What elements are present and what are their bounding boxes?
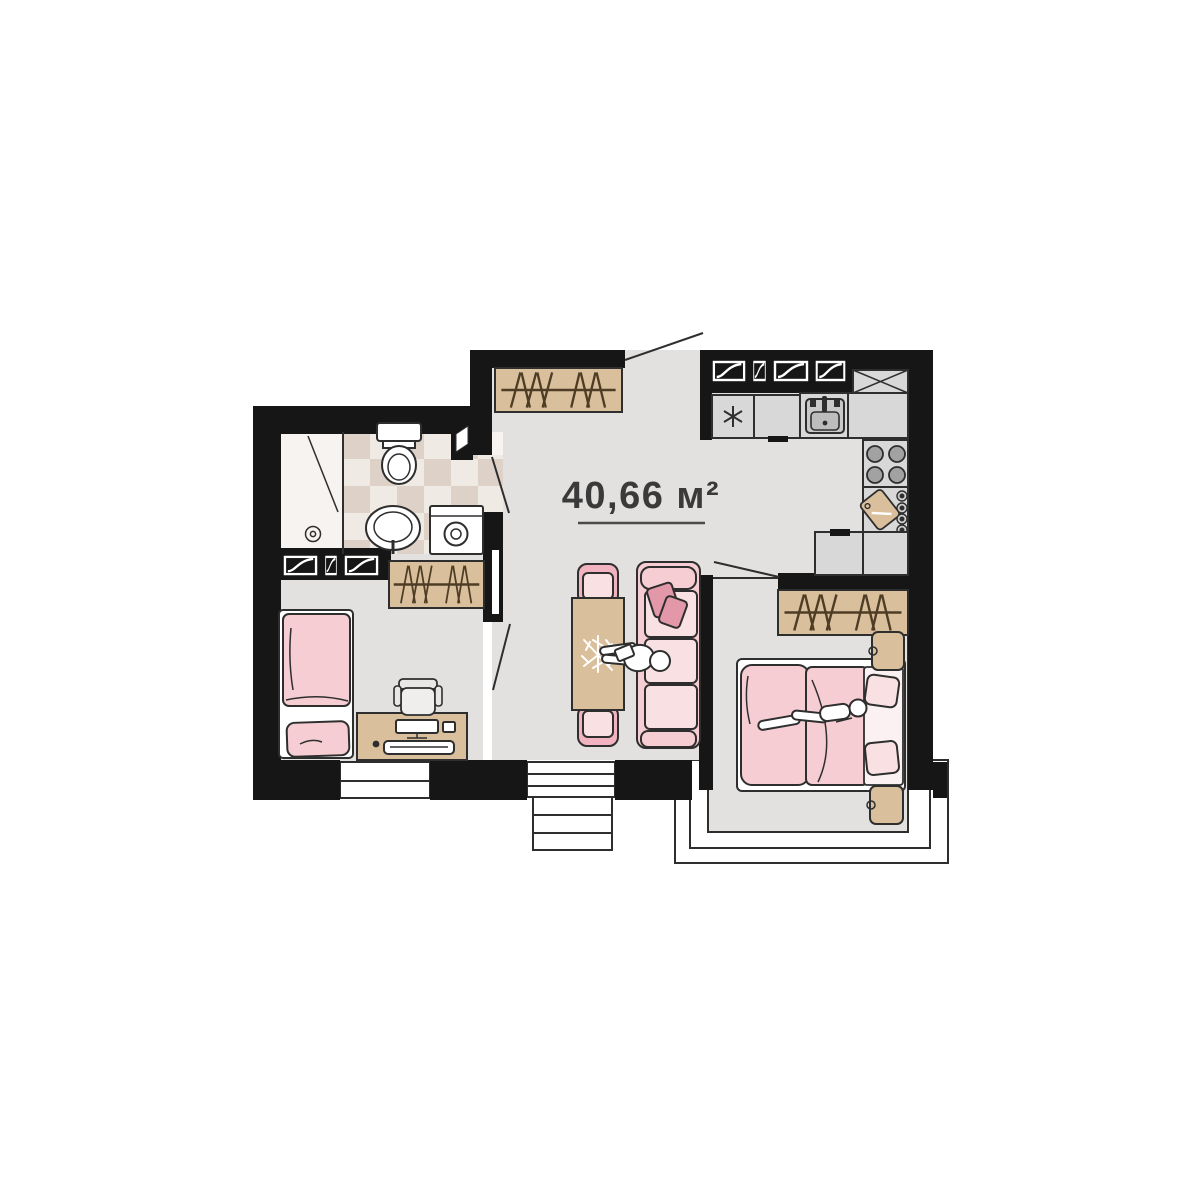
wall-bathroom-top — [253, 406, 470, 434]
wall-bottom-left — [253, 760, 340, 800]
window-icon — [712, 360, 746, 382]
wall-right-corner-nub — [933, 762, 947, 798]
wall-kitchen-left-column — [700, 350, 712, 440]
area-label: 40,66 м² — [562, 475, 720, 517]
hall-wardrobe — [495, 368, 622, 412]
kids-wardrobe — [389, 561, 484, 608]
bed-pillow — [864, 740, 899, 775]
kitchen-sink-icon — [806, 396, 844, 433]
kids-room-window-opening — [340, 762, 430, 798]
entrance-steps — [527, 762, 615, 850]
kids-bed-pillow — [286, 721, 349, 757]
window-icon — [773, 360, 809, 382]
desk-chair — [394, 679, 442, 715]
area-label-group: 40,66 м² — [562, 475, 720, 523]
kitchen-counter-corner — [848, 393, 908, 438]
kitchen-counter-bottom — [815, 532, 863, 575]
kids-door-slab — [492, 550, 499, 614]
speaker-icon — [443, 722, 455, 732]
window-icon — [344, 555, 379, 576]
kids-bed-blanket — [283, 614, 350, 706]
wall-left — [253, 406, 281, 800]
floor-plan-page: 40,66 м² — [0, 0, 1200, 1200]
window-icon — [325, 555, 337, 576]
wall-bedroom-left — [699, 575, 713, 790]
kitchen-counter — [754, 395, 800, 438]
floor-plan: 40,66 м² — [0, 0, 1200, 1200]
left-wall-windows — [283, 555, 379, 576]
dining-chair-bottom — [578, 706, 618, 746]
sofa-cushion — [645, 685, 697, 729]
bed-blanket-right — [806, 667, 868, 785]
steps-icon — [533, 797, 612, 850]
desk — [357, 713, 467, 760]
bed-pillow — [864, 674, 900, 708]
kitchen-windows — [712, 360, 846, 382]
washing-machine-icon — [430, 506, 483, 554]
wall-right — [908, 350, 933, 790]
wall-hall-top — [470, 350, 625, 368]
window-icon — [753, 360, 766, 382]
bathroom-window — [451, 423, 473, 460]
cabinet-handle — [768, 436, 788, 442]
window-icon — [283, 555, 318, 576]
wall-bottom-center-left — [430, 760, 527, 800]
window-icon — [815, 360, 846, 382]
bedroom-wardrobe — [778, 590, 908, 635]
mouse-icon — [373, 741, 380, 748]
cabinet-handle — [830, 529, 850, 536]
kitchen-counter-right — [863, 532, 908, 575]
wall-bottom-center-right — [615, 760, 692, 800]
entry-door-gap-floor — [625, 350, 700, 370]
